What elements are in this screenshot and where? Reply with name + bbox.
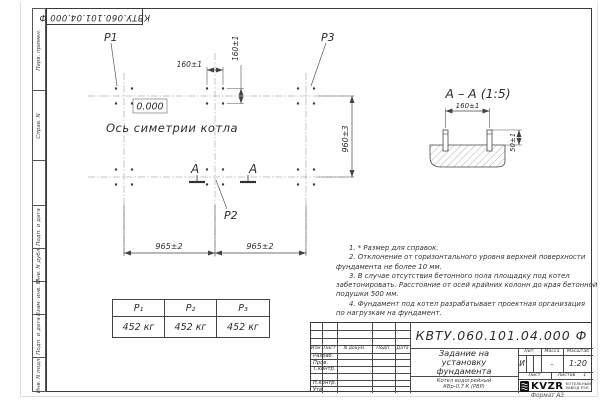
side-cell-inv-podl: Инв. N подл. [33,358,45,391]
load-table-value-p2: 452 кг [165,317,217,337]
side-label: Подп. и дата [36,208,42,245]
tb-row-nkontr: Н.контр. [311,380,337,387]
tb-header-podp: Подп. [372,345,395,353]
tb-product: Котел водогрейный КВр-0,7 К (РВР) [410,378,518,392]
side-label: Подп. и дата [36,317,42,354]
technical-notes: 1. * Размер для справок. 2. Отклонение о… [336,244,594,318]
dim-965-extension-lines [124,205,306,256]
load-table-value-p1: 452 кг [113,317,165,337]
tb-sheet-label: Лист [518,372,551,379]
dim-965-right-label: 965±2 [246,242,273,251]
tb-line [311,330,410,331]
note-line: забетонировать. Расстояние от осей крайн… [336,281,594,290]
section-view-a-a: А – А (1:5) 160±1 50±1 [415,78,590,183]
load-table-header-p1: P₁ [113,300,165,317]
tb-lit-label: Лит. [518,348,541,355]
leader-p1 [111,43,117,86]
note-line: 4. Фундамент под котел разрабатывает про… [336,300,594,309]
note-line: подушки 500 мм. [336,290,594,299]
rotated-designation-box: КВТУ.060.101.04.000 Ф [46,8,143,25]
load-table: P₁ P₂ P₃ 452 кг 452 кг 452 кг [112,299,270,338]
kvzr-logo-icon [520,381,529,392]
load-table-value-p3: 452 кг [217,317,269,337]
dim-965-left-label: 965±2 [155,242,182,251]
frame-side-columns: Перв. примен. Справ. N Подп. и дата Инв.… [32,8,46,392]
tb-header-data: Дата [395,345,410,353]
note-line: фундамента не более 10 мм. [336,263,594,272]
side-label: Взам. инв. N [36,280,42,316]
side-cell-empty [33,161,45,206]
tb-doc-title: Задание на установку фундамента [410,349,518,376]
dim-160v-extension-lines [227,65,244,104]
tb-sheets: Листов 1 [551,372,593,379]
side-label: Перв. примен. [36,29,42,70]
tb-line [311,338,410,339]
tb-row-utv: Утв. [311,386,337,393]
load-table-header-p2: P₂ [165,300,217,317]
side-cell-podp-data-2: Подп. и дата [33,315,45,358]
tb-mass-value: – [541,355,563,372]
side-cell-vzam-inv: Взам. инв. N [33,282,45,315]
tb-line [395,323,396,393]
tb-row-tkontr: Т.контр. [311,366,337,373]
tb-logo-text: KVZR [531,381,563,392]
rotated-designation: КВТУ.060.101.04.000 Ф [39,12,150,22]
foundation-plan: 965±2 965±2 960±3 160±1 160±1 P1 P3 P2 А… [60,25,370,270]
tb-header-dokum: N докум. [337,345,372,353]
tb-header-list: Лист [322,345,337,353]
section-title: А – А (1:5) [444,86,510,101]
tb-scale-label: Масштаб [563,348,593,355]
load-table-header-p3: P₃ [217,300,269,317]
note-line: 1. * Размер для справок. [336,244,594,253]
note-line: 2. Отклонение от горизонтального уровня … [336,253,594,262]
leader-p2 [216,180,227,209]
sheet-edge-right [597,2,598,397]
tb-line [337,323,338,393]
concrete-block [430,145,505,167]
load-label-p1: P1 [104,31,118,44]
tb-product-line: КВр-0,7 К (РВР) [410,384,518,390]
section-mark-left: А [190,162,199,176]
tb-sheets-label: Листов [558,373,576,378]
note-line: по нагрузкам на фундамент. [336,309,594,318]
tb-doc-title-line: фундамента [410,367,518,376]
tb-mass-label: Масса [541,348,563,355]
sheet-edge-left [20,2,21,397]
tb-logo-caption: КОТЕЛЬНЫЙ ЗАВОД РЭП [565,382,591,391]
side-cell-inv-dubl: Инв. N дубл. [33,249,45,282]
dim-960-label: 960±3 [341,125,350,152]
tb-row-prov: Пров. [311,359,337,366]
load-label-p2: P2 [224,209,238,222]
tb-logo-area: KVZR КОТЕЛЬНЫЙ ЗАВОД РЭП [518,379,593,393]
section-cut-symbols [189,175,256,182]
title-block: КВТУ.060.101.04.000 Ф Изм. Лист N докум.… [310,322,592,392]
zero-level-label: 0.000 [136,102,163,113]
load-label-p3: P3 [321,31,335,44]
tb-line [533,355,534,372]
tb-header-izm: Изм. [311,345,322,353]
tb-row-blank [311,373,337,380]
tb-row-razrab: Разраб. [311,353,337,360]
side-label: Инв. N подл. [36,356,42,392]
tb-sheets-value: 1 [583,373,586,378]
side-label: Инв. N дубл. [36,247,42,283]
axis-caption: Ось симетрии котла [106,121,238,135]
dim-height-label: 50±1 [509,133,517,152]
side-cell-podp-data-1: Подп. и дата [33,206,45,249]
format-label: Формат А3 [505,393,590,399]
tb-line [410,376,518,377]
leader-p3 [311,43,326,86]
tb-logo-caption-line: ЗАВОД РЭП [565,386,591,390]
tb-scale-value: 1:20 [563,355,593,372]
note-line: 3. В случае отсутствия бетонного пола пл… [336,272,594,281]
side-label: Справ. N [36,113,42,138]
tb-designation: КВТУ.060.101.04.000 Ф [410,323,593,348]
dim-bolts-label: 160±1 [456,102,480,110]
tb-line [372,323,373,393]
tb-lit-value: И [518,355,526,372]
dim-160v-label: 160±1 [231,36,240,61]
dim-160h-label: 160±1 [177,60,202,69]
section-mark-right: А [248,162,257,176]
side-cell-sprav-n: Справ. N [33,91,45,161]
plan-centerlines [88,53,354,257]
